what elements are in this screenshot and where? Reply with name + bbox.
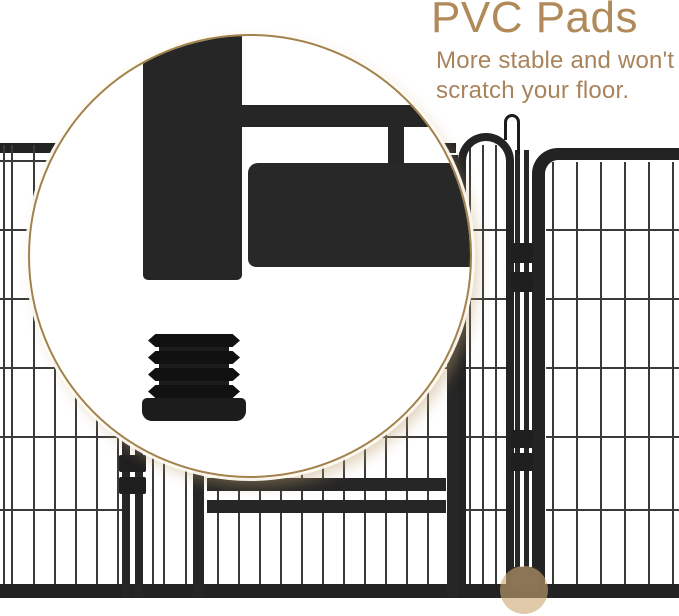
pvc-pad-fin	[148, 385, 240, 398]
hinge-pin-hook-stem	[517, 138, 520, 154]
hinge-sleeve	[119, 477, 146, 494]
fence-wire-vertical	[11, 145, 13, 584]
fence-wire-vertical	[3, 145, 5, 584]
hinge-sleeve	[511, 430, 533, 448]
pad-highlight-circle	[500, 566, 548, 614]
pvc-pad-fin	[148, 334, 240, 347]
hinge-pin-rod	[524, 150, 529, 584]
product-image: PVC Pads More stable and won't scratch y…	[0, 0, 679, 616]
hinge-pin-hook-icon	[504, 114, 520, 140]
hinge-sleeve	[511, 453, 533, 471]
fence-wire-horizontal	[0, 509, 123, 511]
door-bottom-rail	[207, 500, 446, 513]
pvc-pad-cap	[142, 398, 246, 421]
subtitle: More stable and won't scratch your floor…	[436, 46, 679, 105]
arched-panel-wide	[532, 148, 679, 590]
title: PVC Pads	[431, 0, 638, 44]
pvc-pad-fin	[148, 351, 240, 364]
magnifier-callout	[28, 34, 472, 478]
hinge-pin-rod	[515, 150, 520, 584]
pvc-pad-closeup	[30, 36, 472, 478]
pvc-pad-fin	[148, 368, 240, 381]
door-top-rail	[207, 478, 446, 491]
hinge-sleeve	[511, 272, 533, 292]
hinge-sleeve	[511, 243, 533, 263]
